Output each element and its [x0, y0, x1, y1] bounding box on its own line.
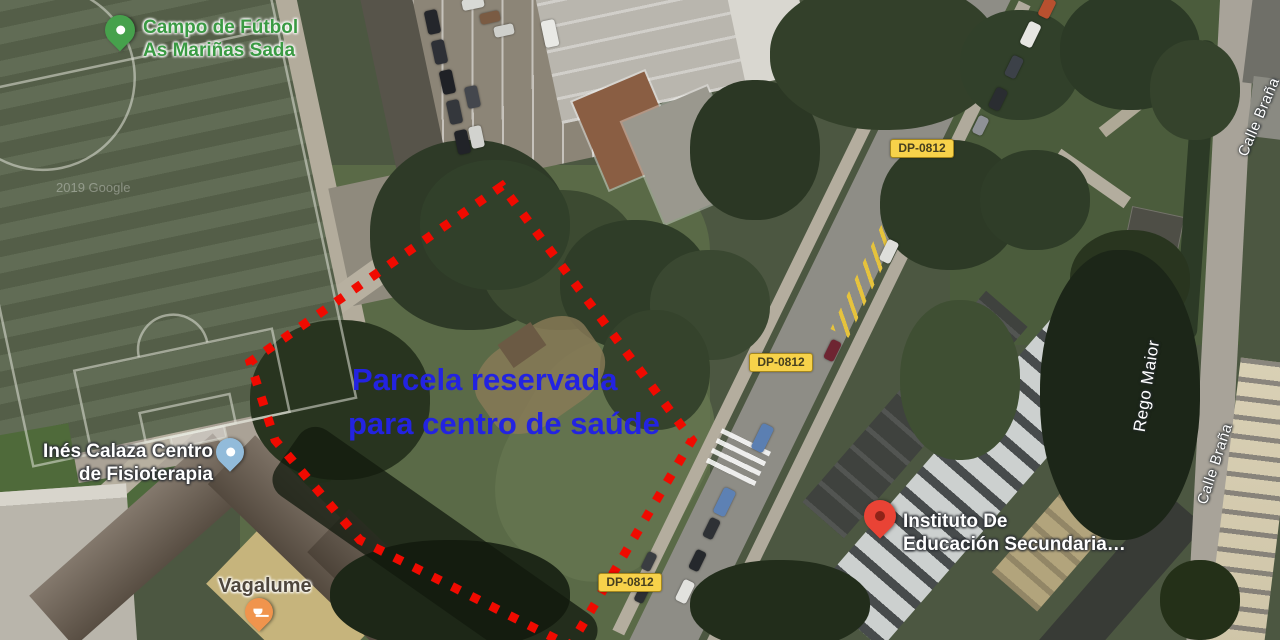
label-line: Campo de Fútbol	[143, 16, 298, 39]
label-line: Inés Calaza Centro	[25, 440, 213, 463]
annotation-line-2: para centro de saúde	[348, 406, 660, 442]
label-campo-de-futbol[interactable]: Campo de Fútbol As Mariñas Sada	[143, 16, 298, 62]
pin-dot	[224, 446, 237, 459]
label-ines-calaza[interactable]: Inés Calaza Centro de Fisioterapia	[25, 440, 213, 486]
label-line: de Fisioterapia	[25, 463, 213, 486]
field-lines	[0, 0, 359, 478]
label-vagalume[interactable]: Vagalume	[213, 575, 317, 598]
label-line: As Mariñas Sada	[143, 39, 298, 62]
annotation-line-1: Parcela reservada	[352, 362, 617, 398]
road-badge-dp0812: DP-0812	[890, 139, 954, 158]
label-line: Educación Secundaria…	[903, 533, 1126, 556]
pin-dot	[114, 24, 127, 37]
cafe-icon-saucer	[256, 615, 269, 617]
pin-dot	[873, 509, 887, 523]
road-badge-dp0812: DP-0812	[598, 573, 662, 592]
label-instituto[interactable]: Instituto De Educación Secundaria…	[903, 510, 1126, 556]
satellite-map[interactable]: 2019 Google Campo de Fútbol As Mariñas S…	[0, 0, 1280, 640]
cafe-icon	[253, 609, 262, 615]
road-badge-dp0812: DP-0812	[749, 353, 813, 372]
watermark: 2019 Google	[56, 180, 130, 195]
label-line: Instituto De	[903, 510, 1126, 533]
